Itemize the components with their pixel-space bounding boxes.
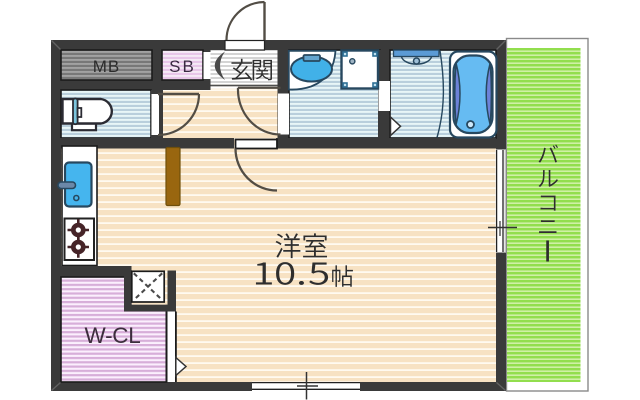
svg-text:W-CL: W-CL: [85, 323, 141, 348]
svg-text:MB: MB: [93, 57, 121, 76]
svg-text:SB: SB: [169, 57, 196, 76]
